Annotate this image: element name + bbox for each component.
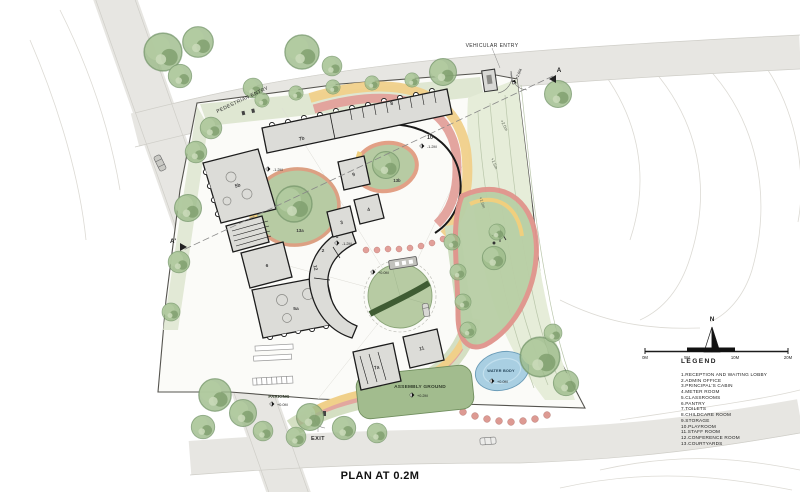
parking-label: PARKING (268, 394, 290, 399)
room-10-label: 10 (427, 135, 433, 141)
tree-icon (285, 35, 319, 69)
tree-icon (286, 427, 306, 447)
level-marker: -1.2M (420, 144, 437, 149)
tree-icon (482, 246, 505, 269)
tree-icon (168, 64, 191, 87)
tree-icon (430, 59, 457, 86)
tree-icon (489, 224, 505, 240)
level-courtyard: -1.2M (273, 168, 283, 172)
tree-icon (444, 234, 460, 250)
tree-icon (367, 423, 387, 443)
exit-label: EXIT (311, 436, 325, 442)
tree-icon (185, 141, 207, 163)
level-plaza: +0.0M (378, 271, 389, 275)
legend-heading: LEGEND (681, 358, 785, 365)
vehicular-entry-label: VEHICULAR ENTRY (466, 43, 519, 49)
courtyard-13a-label: 13a (296, 228, 304, 233)
tree-icon (460, 322, 476, 338)
tree-icon (326, 80, 340, 94)
tree-icon (545, 81, 572, 108)
car-icon (480, 437, 496, 445)
tree-icon (297, 404, 324, 431)
section-marker-a-prime: A' (170, 238, 176, 245)
tree-icon (332, 416, 355, 439)
legend-item: 13.COURTYARDS (681, 441, 785, 447)
level-marker: -1.2M (335, 241, 352, 246)
tree-icon (553, 370, 578, 395)
tree-icon (405, 73, 419, 87)
room-7b-label: 7b (298, 135, 305, 142)
scale-label-0m: 0M (642, 355, 648, 360)
water-body-label: WATER BODY (487, 369, 515, 373)
legend: LEGEND 1.RECEPTION AND WAITING LOBBY 2.A… (681, 358, 785, 447)
tree-icon (183, 27, 214, 58)
section-marker-a: A (557, 67, 562, 74)
tree-icon (365, 76, 379, 90)
tree-icon (289, 86, 303, 100)
tree-icon (520, 337, 560, 377)
tree-icon (168, 251, 190, 273)
room-6-label: 6 (266, 263, 269, 269)
tree-icon (253, 421, 273, 441)
drawing-title: PLAN AT 0.2M (280, 470, 480, 482)
tree-icon (230, 400, 257, 427)
level-reception: -1.2M (342, 242, 352, 246)
tree-icon (544, 324, 562, 342)
seat-scallops-lower (460, 409, 551, 426)
scale-label-20m: 20M (784, 355, 793, 360)
tree-icon (450, 264, 466, 280)
assembly-ground-label: ASSEMBLY GROUND (394, 384, 446, 390)
tree-icon (322, 56, 342, 76)
level-marker: -1.2M (266, 167, 283, 172)
north-label: N (710, 316, 715, 323)
site-plan-canvas: A A' VEHICULAR ENTRY PEDESTRIAN ENTRY EX… (0, 0, 800, 492)
north-arrow: N (704, 316, 720, 352)
tree-icon (455, 294, 471, 310)
site-plan-drawing: A A' VEHICULAR ENTRY PEDESTRIAN ENTRY EX… (0, 0, 800, 492)
tree-icon (200, 117, 222, 139)
level-playroom: -1.2M (427, 145, 437, 149)
room-1-label: 1 (336, 234, 339, 240)
level-water: +0.0M (497, 380, 508, 384)
courtyard-13b-label: 13b (393, 178, 401, 183)
tree-icon (162, 303, 180, 321)
tree-icon (191, 415, 214, 438)
room-5a-label: 5a (293, 306, 299, 312)
tree-icon (373, 152, 400, 179)
tree-icon (199, 379, 231, 411)
tree-icon (175, 195, 202, 222)
level-parking: +0.0M (277, 403, 288, 407)
room-2-label: 2 (322, 248, 325, 254)
level-assembly: +0.2M (417, 394, 428, 398)
